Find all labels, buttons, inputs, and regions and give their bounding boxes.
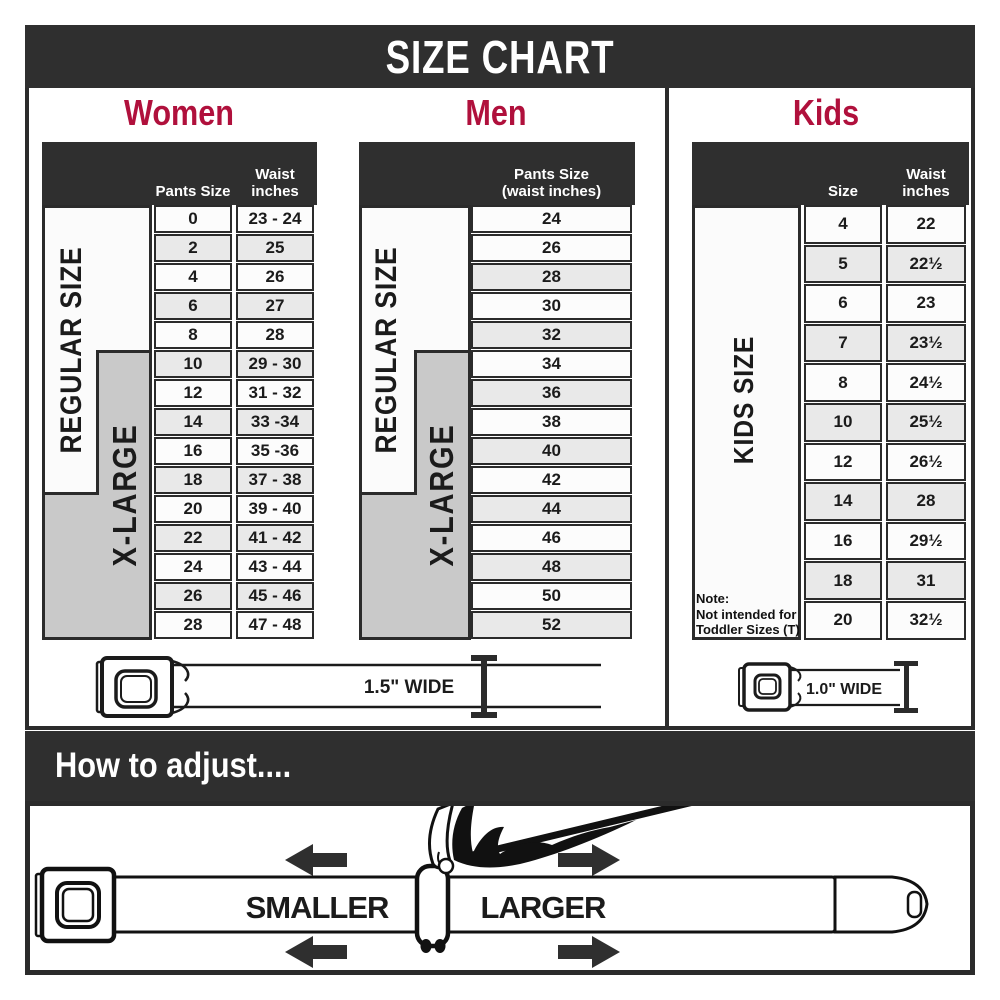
women-xlarge-label: X-LARGE	[106, 424, 144, 567]
size-cell: 12	[804, 443, 882, 482]
table-row: 2645 - 46	[154, 582, 314, 610]
table-row: 2032½	[804, 601, 966, 640]
size-cell: 16	[804, 522, 882, 561]
size-cell: 27	[236, 292, 314, 320]
size-cell: 41 - 42	[236, 524, 314, 552]
size-cell: 16	[154, 437, 232, 465]
size-cell: 26½	[886, 443, 966, 482]
size-cell: 38	[471, 408, 632, 436]
kids-belt-illustration: 1.0" WIDE	[732, 650, 942, 722]
size-cell: 7	[804, 324, 882, 363]
women-section-title: Women	[52, 92, 307, 134]
adult-belt-width-label: 1.5" WIDE	[364, 677, 454, 698]
table-row: 50	[471, 582, 632, 610]
size-cell: 28	[471, 263, 632, 291]
women-table-body: REGULAR SIZE X-LARGE 023 - 2422542662782…	[42, 205, 317, 642]
table-row: 824½	[804, 363, 966, 402]
table-row: 34	[471, 350, 632, 378]
men-xlarge-label: X-LARGE	[423, 424, 461, 567]
kids-belt-width-label: 1.0" WIDE	[806, 681, 882, 698]
size-cell: 14	[154, 408, 232, 436]
kids-toddler-note: Note: Not intended for Toddler Sizes (T)	[696, 591, 800, 638]
size-cell: 26	[236, 263, 314, 291]
table-row: 32	[471, 321, 632, 349]
kids-col-size: Size	[804, 183, 882, 200]
size-cell: 14	[804, 482, 882, 521]
size-cell: 50	[471, 582, 632, 610]
table-row: 225	[154, 234, 314, 262]
table-row: 623	[804, 284, 966, 323]
size-cell: 32½	[886, 601, 966, 640]
size-cell: 20	[154, 495, 232, 523]
size-cell: 25	[236, 234, 314, 262]
table-row: 2039 - 40	[154, 495, 314, 523]
table-row: 1025½	[804, 403, 966, 442]
size-cell: 26	[154, 582, 232, 610]
table-row: 30	[471, 292, 632, 320]
size-cell: 33 -34	[236, 408, 314, 436]
size-cell: 24	[471, 205, 632, 233]
section-divider	[665, 88, 669, 726]
arrow-left-icon	[285, 936, 347, 968]
table-row: 52	[471, 611, 632, 639]
kids-size-label: KIDS SIZE	[728, 336, 760, 464]
size-cell: 0	[154, 205, 232, 233]
table-row: 1029 - 30	[154, 350, 314, 378]
size-cell: 42	[471, 466, 632, 494]
size-cell: 23½	[886, 324, 966, 363]
size-cell: 28	[154, 611, 232, 639]
size-chart-page: SIZE CHART Women Men Kids Pants Size Wai…	[0, 0, 1000, 1000]
table-row: 42	[471, 466, 632, 494]
size-cell: 29½	[886, 522, 966, 561]
size-cell: 37 - 38	[236, 466, 314, 494]
size-cell: 10	[804, 403, 882, 442]
size-cell: 6	[154, 292, 232, 320]
size-cell: 24	[154, 553, 232, 581]
women-table-header: Pants Size Waist inches	[42, 142, 317, 205]
adjust-belt-diagram: SMALLER LARGER	[30, 806, 970, 970]
table-row: 1837 - 38	[154, 466, 314, 494]
table-row: 38	[471, 408, 632, 436]
table-row: 24	[471, 205, 632, 233]
size-cell: 52	[471, 611, 632, 639]
kids-table-body: KIDS SIZE Note: Not intended for Toddler…	[692, 205, 969, 642]
size-cell: 22½	[886, 245, 966, 284]
size-cell: 36	[471, 379, 632, 407]
chart-content-area: Women Men Kids Pants Size Waist inches R…	[25, 88, 975, 730]
men-table-body: REGULAR SIZE X-LARGE 2426283032343638404…	[359, 205, 635, 642]
size-cell: 43 - 44	[236, 553, 314, 581]
women-size-table: Pants Size Waist inches REGULAR SIZE X-L…	[42, 142, 317, 642]
belt-strap	[110, 877, 835, 932]
adjuster-loop	[435, 939, 446, 953]
size-cell: 29 - 30	[236, 350, 314, 378]
table-row: 1226½	[804, 443, 966, 482]
size-cell: 30	[471, 292, 632, 320]
kids-size-table: Size Waist inches KIDS SIZE Note: Not in…	[692, 142, 969, 642]
women-rows: 023 - 242254266278281029 - 301231 - 3214…	[154, 205, 314, 640]
size-cell: 32	[471, 321, 632, 349]
size-cell: 4	[804, 205, 882, 244]
men-section-title: Men	[369, 92, 624, 134]
men-rows: 242628303234363840424446485052	[471, 205, 632, 640]
table-row: 1231 - 32	[154, 379, 314, 407]
table-row: 723½	[804, 324, 966, 363]
men-col-pants-size: Pants Size (waist inches)	[471, 166, 632, 201]
kids-col-waist: Waist inches	[886, 166, 966, 201]
size-cell: 8	[154, 321, 232, 349]
size-cell: 45 - 46	[236, 582, 314, 610]
size-cell: 31	[886, 561, 966, 600]
size-cell: 23	[886, 284, 966, 323]
table-row: 48	[471, 553, 632, 581]
arrow-right-icon	[558, 936, 620, 968]
table-row: 422	[804, 205, 966, 244]
size-cell: 31 - 32	[236, 379, 314, 407]
table-row: 522½	[804, 245, 966, 284]
size-cell: 18	[804, 561, 882, 600]
size-cell: 34	[471, 350, 632, 378]
table-row: 1635 -36	[154, 437, 314, 465]
table-row: 627	[154, 292, 314, 320]
size-cell: 44	[471, 495, 632, 523]
size-cell: 22	[154, 524, 232, 552]
table-row: 426	[154, 263, 314, 291]
size-chart-header-band: SIZE CHART	[25, 25, 975, 88]
size-cell: 25½	[886, 403, 966, 442]
men-size-table: Pants Size (waist inches) REGULAR SIZE X…	[359, 142, 635, 642]
men-table-header: Pants Size (waist inches)	[359, 142, 635, 205]
seatbelt-buckle-icon	[36, 869, 114, 941]
size-cell: 28	[886, 482, 966, 521]
men-regular-size-label: REGULAR SIZE	[370, 246, 404, 453]
table-row: 2847 - 48	[154, 611, 314, 639]
table-row: 28	[471, 263, 632, 291]
size-cell: 28	[236, 321, 314, 349]
women-regular-size-label: REGULAR SIZE	[55, 246, 89, 453]
table-row: 46	[471, 524, 632, 552]
table-row: 1428	[804, 482, 966, 521]
smaller-label: SMALLER	[246, 890, 389, 925]
table-row: 2241 - 42	[154, 524, 314, 552]
table-row: 023 - 24	[154, 205, 314, 233]
size-cell: 6	[804, 284, 882, 323]
size-cell: 46	[471, 524, 632, 552]
table-row: 1831	[804, 561, 966, 600]
kids-table-header: Size Waist inches	[692, 142, 969, 205]
women-col-waist: Waist inches	[236, 166, 314, 201]
size-cell: 10	[154, 350, 232, 378]
size-cell: 2	[154, 234, 232, 262]
size-cell: 4	[154, 263, 232, 291]
size-cell: 23 - 24	[236, 205, 314, 233]
size-cell: 12	[154, 379, 232, 407]
belt-adjuster	[417, 866, 448, 946]
size-cell: 48	[471, 553, 632, 581]
how-to-adjust-heading: How to adjust....	[55, 746, 291, 786]
kids-rows: 422522½623723½824½1025½1226½14281629½183…	[804, 205, 966, 641]
page-title: SIZE CHART	[386, 30, 615, 84]
size-cell: 40	[471, 437, 632, 465]
adjust-illustration-panel: SMALLER LARGER	[25, 801, 975, 975]
size-cell: 22	[886, 205, 966, 244]
belt-tip-slot	[908, 892, 921, 917]
table-row: 26	[471, 234, 632, 262]
table-row: 2443 - 44	[154, 553, 314, 581]
table-row: 828	[154, 321, 314, 349]
arrow-left-icon	[285, 844, 347, 876]
size-cell: 35 -36	[236, 437, 314, 465]
how-to-adjust-band: How to adjust....	[25, 731, 975, 801]
size-cell: 39 - 40	[236, 495, 314, 523]
table-row: 1629½	[804, 522, 966, 561]
table-row: 40	[471, 437, 632, 465]
size-cell: 18	[154, 466, 232, 494]
larger-label: LARGER	[481, 890, 607, 925]
size-cell: 8	[804, 363, 882, 402]
size-cell: 20	[804, 601, 882, 640]
size-cell: 26	[471, 234, 632, 262]
adult-belt-illustration: 1.5" WIDE	[94, 648, 614, 728]
size-cell: 24½	[886, 363, 966, 402]
women-col-pants-size: Pants Size	[154, 183, 232, 200]
table-row: 44	[471, 495, 632, 523]
size-cell: 5	[804, 245, 882, 284]
adjuster-loop	[421, 939, 432, 953]
kids-section-title: Kids	[699, 92, 954, 134]
size-cell: 47 - 48	[236, 611, 314, 639]
table-row: 1433 -34	[154, 408, 314, 436]
table-row: 36	[471, 379, 632, 407]
